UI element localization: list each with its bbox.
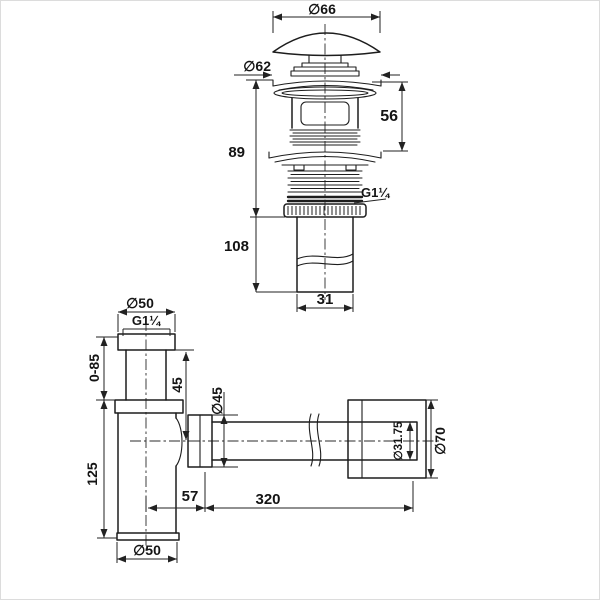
dim-tailpipe-length: 108 xyxy=(224,238,249,255)
dim-overall-height: 89 xyxy=(228,144,245,161)
dim-body-diameter: ∅50 xyxy=(133,542,161,558)
dim-flange-diameter: ∅62 xyxy=(243,58,271,74)
popup-cap xyxy=(273,33,380,56)
trap-cup-body xyxy=(118,413,176,533)
trap-inlet-nut xyxy=(118,334,175,350)
dim-body-height: 125 xyxy=(84,462,100,486)
dim-outlet-offset: 57 xyxy=(182,488,199,505)
popup-waste-drawing: ∅66 ∅62 56 89 108 G1¼ 31 xyxy=(224,1,408,312)
dim-pipe-diameter: ∅31.75 xyxy=(393,421,405,460)
technical-drawing: ∅66 ∅62 56 89 108 G1¼ 31 xyxy=(0,0,600,600)
thread-size-label-trap: G1¼ xyxy=(132,313,161,328)
dim-tailpipe-width: 31 xyxy=(317,291,334,308)
dim-cap-diameter: ∅66 xyxy=(308,1,336,17)
popup-backnut-knurling xyxy=(288,206,360,215)
dim-outlet-nut-diameter: ∅45 xyxy=(209,387,225,415)
dim-adjustment-range: 0-85 xyxy=(86,354,102,382)
dim-inlet-exposure: 45 xyxy=(169,377,185,393)
trap-cup-lip xyxy=(115,400,183,413)
trap-wall-flange xyxy=(348,400,426,478)
popup-lower-threads xyxy=(288,171,362,192)
dim-upper-height: 56 xyxy=(380,108,398,125)
thread-size-label-popup: G1¼ xyxy=(361,185,390,200)
bottle-trap-drawing: ∅50 G1¼ 0-85 125 45 ∅45 xyxy=(84,295,448,563)
popup-thread-end xyxy=(288,197,362,201)
trap-outlet-bulge xyxy=(176,418,182,466)
trap-cup-base xyxy=(117,533,179,540)
dim-pipe-length: 320 xyxy=(255,491,280,508)
dim-inlet-nut-diameter: ∅50 xyxy=(126,295,154,311)
drawing-svg: ∅66 ∅62 56 89 108 G1¼ 31 xyxy=(0,0,600,600)
trap-dimensions: ∅50 G1¼ 0-85 125 45 ∅45 xyxy=(84,295,448,563)
dim-escutcheon-diameter: ∅70 xyxy=(432,427,448,455)
